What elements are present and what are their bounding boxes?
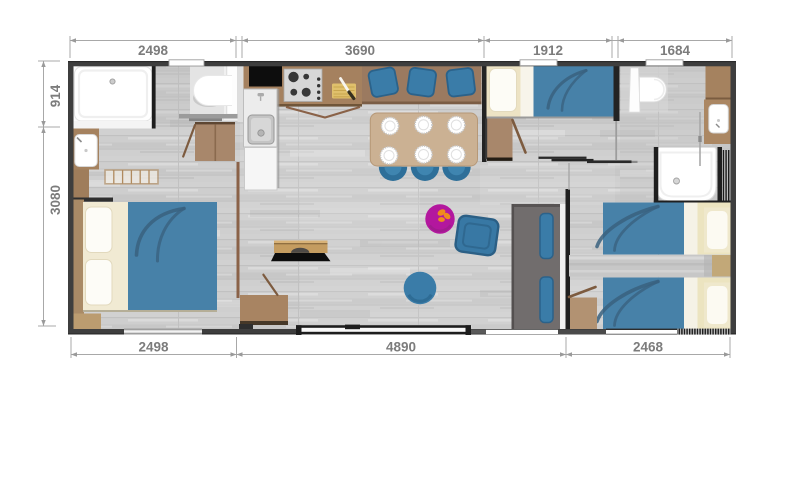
svg-text:914: 914: [48, 84, 63, 107]
svg-text:2498: 2498: [138, 43, 169, 58]
svg-text:4890: 4890: [386, 340, 416, 355]
svg-text:3690: 3690: [345, 43, 375, 58]
svg-text:2498: 2498: [138, 340, 169, 355]
svg-text:1684: 1684: [660, 43, 691, 58]
svg-text:2468: 2468: [633, 340, 664, 355]
svg-text:3080: 3080: [48, 185, 63, 215]
svg-text:1912: 1912: [533, 43, 563, 58]
